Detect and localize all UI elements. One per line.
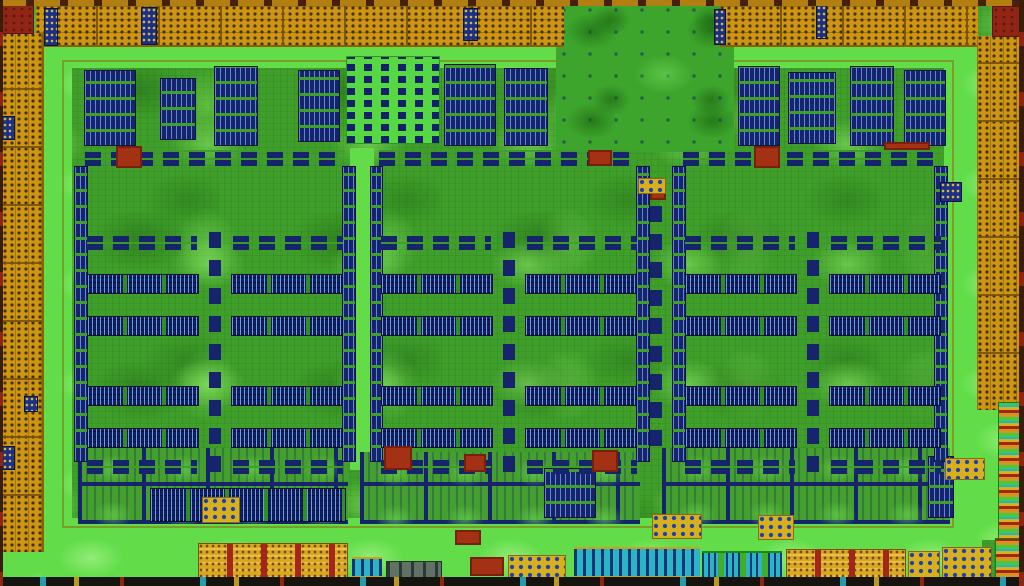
sm-dash-row: [831, 236, 941, 250]
sm-edge-col: [672, 166, 686, 462]
sram-band: [150, 488, 346, 522]
sram-patch: [904, 70, 946, 146]
register-ladder: [87, 386, 199, 406]
register-ladder: [231, 386, 343, 406]
sm-dash-row: [683, 150, 943, 166]
register-ladder: [525, 428, 637, 448]
io-pad-col-left: [2, 33, 44, 552]
register-ladder: [231, 274, 343, 294]
red-block: [592, 450, 618, 472]
pad-marker: [2, 116, 15, 140]
phy-cyan-large: [574, 547, 700, 578]
register-ladder: [829, 316, 941, 336]
register-ladder: [381, 386, 493, 406]
fuse-block: [508, 555, 566, 578]
moat-corner-bl: [2, 550, 42, 580]
forest-top-mid: [556, 4, 734, 152]
pad-marker: [940, 182, 962, 202]
die-edge-left: [0, 0, 3, 586]
sram-patch: [504, 68, 548, 146]
die-edge-top: [0, 0, 1024, 6]
pad-marker: [24, 396, 38, 412]
pad-marker: [2, 446, 15, 470]
register-ladder: [685, 316, 797, 336]
register-ladder: [381, 316, 493, 336]
io-pad-band-top-left: [36, 5, 564, 47]
sm-dash-row: [381, 236, 491, 250]
pad-marker: [463, 8, 478, 41]
fuse-block: [908, 551, 940, 578]
pad-marker: [714, 9, 726, 45]
register-ladder: [231, 316, 343, 336]
sm-edge-col: [636, 166, 650, 462]
red-block: [116, 146, 142, 168]
sram-patch: [738, 66, 780, 146]
io-pad-band-top-right: [720, 5, 978, 47]
fuse-block: [202, 497, 240, 523]
sm-dash-row: [233, 460, 343, 474]
grey-cell-row: [386, 561, 442, 578]
dense-logic-block: [346, 56, 440, 144]
sm-dash-row: [685, 460, 795, 474]
register-ladder: [829, 386, 941, 406]
die-edge-right: [1019, 0, 1024, 586]
corner-block-tr: [992, 6, 1022, 37]
gpc-spine: [503, 226, 515, 472]
sram-patch: [160, 78, 196, 140]
die-edge-bottom: [0, 577, 1024, 586]
register-ladder: [525, 316, 637, 336]
corner-stack: [995, 538, 1022, 578]
register-ladder: [685, 386, 797, 406]
red-block: [588, 150, 612, 166]
fuse-block: [945, 458, 985, 480]
center-chain: [648, 194, 662, 446]
red-block: [464, 454, 486, 472]
register-ladder: [525, 274, 637, 294]
io-pad-col-right: [977, 36, 1022, 410]
sm-dash-row: [233, 236, 343, 250]
dram-pads-right: [786, 549, 906, 578]
sm-edge-col: [74, 166, 88, 462]
dram-pads-left: [198, 543, 348, 579]
register-ladder: [829, 428, 941, 448]
sm-edge-col: [370, 166, 383, 462]
sram-patch: [788, 72, 836, 144]
pad-marker: [44, 8, 58, 46]
register-ladder: [87, 428, 199, 448]
sm-dash-row: [527, 236, 637, 250]
red-block: [754, 146, 780, 168]
phy-cyan-green: [702, 551, 782, 578]
register-ladder: [87, 316, 199, 336]
sm-dash-row: [87, 460, 197, 474]
fuse-block: [652, 514, 702, 539]
sram-patch: [444, 64, 496, 146]
sram-patch: [214, 66, 258, 146]
register-ladder: [525, 386, 637, 406]
register-ladder: [829, 274, 941, 294]
phy-cyan-small: [352, 557, 382, 578]
sm-dash-row: [87, 236, 197, 250]
sm-edge-col: [342, 166, 356, 462]
register-ladder: [231, 428, 343, 448]
sram-patch: [84, 70, 136, 146]
fuse-block: [638, 178, 666, 194]
register-ladder: [381, 428, 493, 448]
sram-patch: [850, 66, 894, 146]
gpc-spine: [209, 226, 221, 472]
red-bar: [884, 142, 930, 150]
fuse-block: [758, 515, 794, 540]
sm-dash-row: [685, 236, 795, 250]
pad-marker: [141, 7, 157, 45]
pad-marker: [816, 5, 827, 39]
register-ladder: [87, 274, 199, 294]
sm-edge-col: [934, 166, 948, 462]
register-ladder: [381, 274, 493, 294]
red-block: [384, 446, 412, 470]
sram-patch: [298, 70, 340, 142]
sm-dash-row: [831, 460, 941, 474]
sram-patch: [544, 468, 596, 518]
register-ladder: [685, 428, 797, 448]
sm-dash-row: [527, 460, 637, 474]
red-block: [455, 530, 481, 545]
gpc-spine: [807, 226, 819, 472]
corner-block-tl: [2, 5, 34, 34]
fuse-block: [942, 547, 992, 578]
red-block: [470, 557, 504, 576]
die-shot-image: [0, 0, 1024, 586]
register-ladder: [685, 274, 797, 294]
